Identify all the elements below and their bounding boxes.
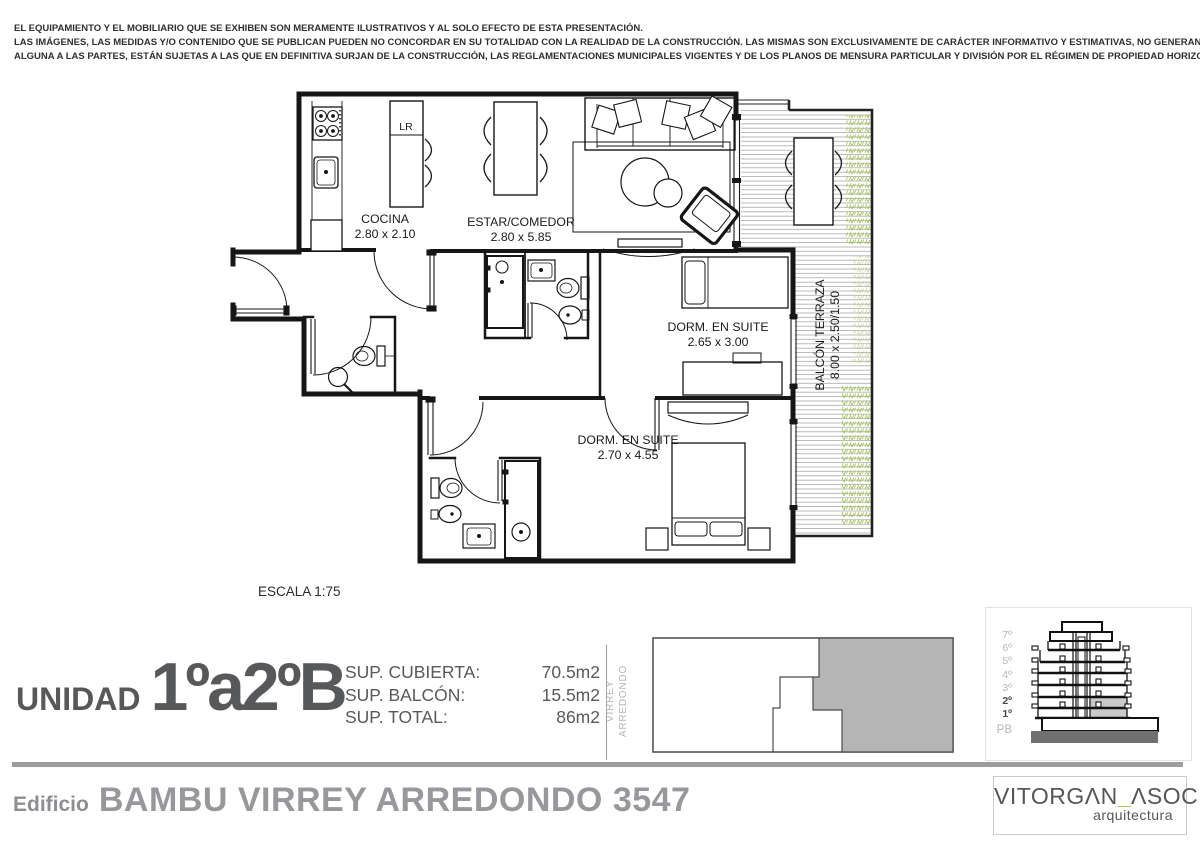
floor-label-5: 5º [984, 655, 1012, 668]
room-dims-dorm2: 2.70 x 4.55 [598, 448, 659, 462]
logo-tagline: arquitectura [994, 807, 1173, 823]
surface-row: SUP. BALCÓN: 15.5m2 [345, 684, 600, 707]
logo-word1: VITORGΛN [994, 783, 1118, 809]
tv-console [618, 239, 682, 247]
building-elevation-drawing [1020, 615, 1190, 750]
floor-label-7: 7º [984, 629, 1012, 642]
surface-value: 15.5m2 [542, 684, 600, 707]
bath2-fixtures [431, 461, 538, 558]
street-line-1: VIRREY [605, 651, 618, 751]
balcony-plants-bottom [842, 386, 872, 524]
scale-label: ESCALA 1:75 [258, 584, 341, 599]
floor-plan-drawing: LR [0, 0, 1000, 620]
room-label-dorm2: DORM. EN SUITE [577, 433, 678, 447]
architect-logo: VITORGΛN_ΛSOC arquitectura [993, 776, 1187, 835]
outdoor-table [794, 138, 833, 225]
bath1-fixtures [485, 256, 589, 328]
room-label-dorm1: DORM. EN SUITE [667, 320, 768, 334]
building-name: BAMBU VIRREY ARREDONDO 3547 [99, 781, 691, 820]
wardrobe2 [668, 402, 748, 413]
building-title: Edificio BAMBU VIRREY ARREDONDO 3547 [13, 781, 690, 820]
label-lr: LR [399, 121, 413, 133]
shower2 [505, 461, 538, 558]
plan-sheet: EL EQUIPAMIENTO Y EL MOBILIARIO QUE SE E… [0, 0, 1200, 848]
surface-value: 70.5m2 [542, 661, 600, 684]
room-dims-dorm1: 2.65 x 3.00 [688, 335, 749, 349]
surface-table: SUP. CUBIERTA: 70.5m2 SUP. BALCÓN: 15.5m… [345, 661, 600, 729]
surface-value: 86m2 [556, 706, 600, 729]
surface-label: SUP. TOTAL: [345, 706, 448, 729]
street-name-vertical: VIRREY ARREDONDO [605, 651, 631, 751]
elevation-base [1042, 718, 1158, 731]
desk1 [683, 362, 782, 395]
dining-set [484, 102, 547, 195]
balcony-furniture [786, 138, 842, 225]
bath2-door [455, 458, 502, 503]
room-dims-cocina: 2.80 x 2.10 [355, 227, 416, 241]
room-dims-estar: 2.80 x 5.85 [491, 230, 552, 244]
shower1 [487, 256, 523, 328]
room-label-estar: ESTAR/COMEDOR [467, 215, 575, 229]
unit-title: UNIDAD 1ºa2ºB [16, 648, 345, 726]
building-prefix: Edificio [13, 793, 89, 817]
floor-label-1-highlighted: 1º [984, 708, 1012, 721]
dorm2-door [426, 397, 483, 455]
entry-door [231, 257, 289, 315]
balcony-plants-mid [853, 256, 872, 366]
surface-label: SUP. CUBIERTA: [345, 661, 480, 684]
sofa-pillows [592, 96, 732, 140]
bath1-door [528, 303, 567, 340]
floor-labels: 7º 6º 5º 4º 3º 2º 1º PB [984, 629, 1012, 738]
floor-label-6: 6º [984, 642, 1012, 655]
street-line-2: ARREDONDO [618, 651, 631, 751]
surface-row: SUP. CUBIERTA: 70.5m2 [345, 661, 600, 684]
logo-wordmark: VITORGΛN_ΛSOC [994, 784, 1173, 808]
balcony-plants-top [846, 115, 872, 245]
logo-word2: ΛSOC [1131, 783, 1198, 809]
oven [311, 220, 342, 251]
divider-bar [12, 762, 1183, 767]
dorm2-furniture [646, 402, 770, 550]
room-dims-balcon: 8.00 x 2.50/1.50 [828, 291, 842, 379]
surface-label: SUP. BALCÓN: [345, 684, 465, 707]
toilette-door [311, 317, 371, 375]
living-furniture [573, 96, 739, 257]
kitchen-fixtures [311, 101, 342, 251]
doors [231, 250, 659, 503]
floor-label-pb: PB [984, 724, 1012, 737]
unit-prefix: UNIDAD [16, 681, 140, 718]
kitchen-island [390, 101, 432, 207]
room-label-balcon: BALCÓN TERRAZA [812, 279, 827, 391]
unit-locator-diagram [648, 632, 960, 758]
bed2 [672, 443, 745, 545]
room-label-cocina: COCINA [361, 212, 410, 226]
bed1 [682, 257, 788, 308]
kitchen-door [374, 250, 436, 311]
logo-underscore: _ [1118, 783, 1131, 809]
floor-label-4: 4º [984, 669, 1012, 682]
floor-label-2-highlighted: 2º [984, 695, 1012, 708]
floor-label-3: 3º [984, 682, 1012, 695]
surface-row: SUP. TOTAL: 86m2 [345, 706, 600, 729]
unit-number: 1ºa2ºB [150, 648, 344, 726]
elevation-ground [1031, 731, 1158, 743]
bidet1 [559, 306, 581, 324]
coffee-table-small [654, 179, 682, 207]
